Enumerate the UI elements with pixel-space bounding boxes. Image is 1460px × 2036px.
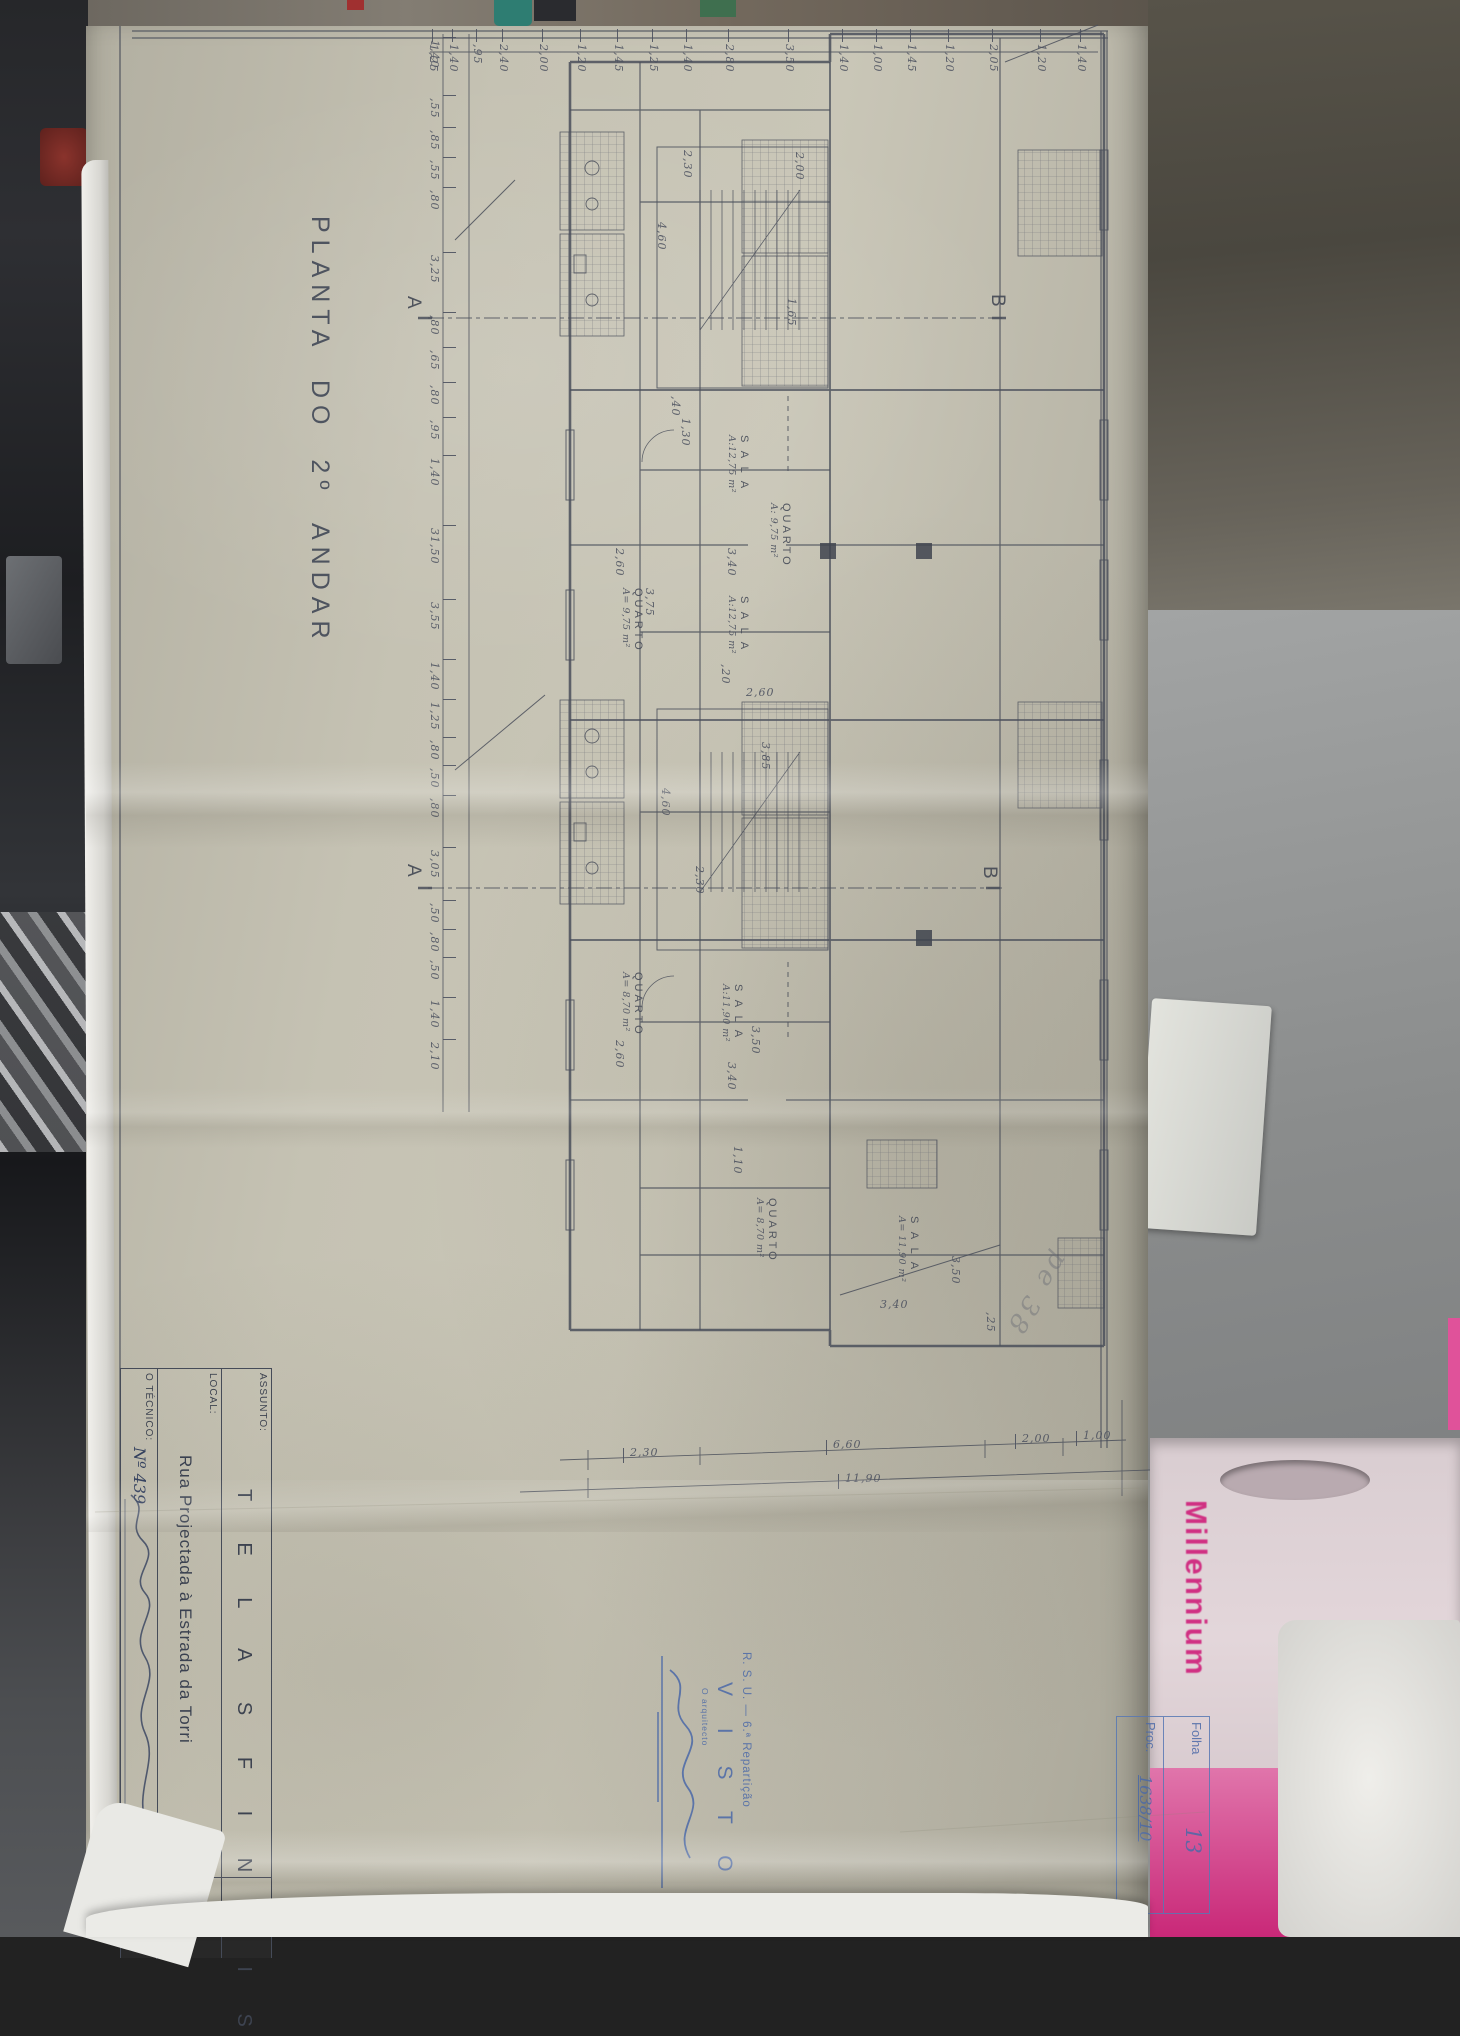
tecnico-signature <box>121 1489 155 1849</box>
background-dark-corner <box>1148 0 1460 620</box>
plan-title: PLANTA DO 2º ANDAR <box>305 216 334 561</box>
folha-proc-stamp: Folha 13 Proc. 1638/10 <box>1116 1716 1210 1914</box>
background-pink-sliver <box>1448 1318 1460 1430</box>
background-striped-fabric <box>0 912 88 1152</box>
visto-stamp: R. S. U. — 6.ª Repartição V I S T O O ar… <box>630 1652 752 1914</box>
local-label: LOCAL: <box>207 1373 218 1415</box>
proc-value: 1638/10 <box>1136 1775 1155 1841</box>
background-left-strip <box>0 0 88 1937</box>
background-teal-object <box>494 0 532 26</box>
title-block-row-assunto: ASSUNTO: T E L A S F I N A I S <box>221 1369 271 1958</box>
visto-signature <box>656 1652 700 1902</box>
folha-label: Folha <box>1189 1722 1204 1755</box>
assunto-label: ASSUNTO: <box>257 1373 268 1432</box>
proc-row: Proc. 1638/10 <box>1117 1717 1163 1913</box>
visto-text: V I S T O <box>712 1682 736 1914</box>
background-grey-object <box>6 556 62 664</box>
tecnico-label: O TÉCNICO: <box>143 1373 154 1441</box>
background-dark-object <box>534 0 576 21</box>
background-green-object <box>700 0 736 17</box>
local-value: Rua Projectada à Estrada da Torri <box>175 1455 195 1744</box>
folha-row: Folha 13 <box>1163 1717 1209 1913</box>
bag-tissue <box>1278 1620 1460 1937</box>
paper-curled-edge-bottom <box>86 1893 1148 1937</box>
background-red-sliver <box>347 0 364 10</box>
folha-value: 13 <box>1181 1827 1205 1854</box>
visto-arquitecto-line: O arquitecto <box>700 1688 710 1914</box>
bag-handle <box>1220 1460 1370 1500</box>
visto-department-line: R. S. U. — 6.ª Repartição <box>740 1652 752 1914</box>
proc-label: Proc. <box>1143 1722 1158 1752</box>
bag-brand-text: Millennium <box>1172 1500 1212 1730</box>
paper-scrap <box>1136 998 1272 1236</box>
photo-of-floor-plan: { "photo": { "bag_text": "Millennium" },… <box>0 0 1460 1937</box>
